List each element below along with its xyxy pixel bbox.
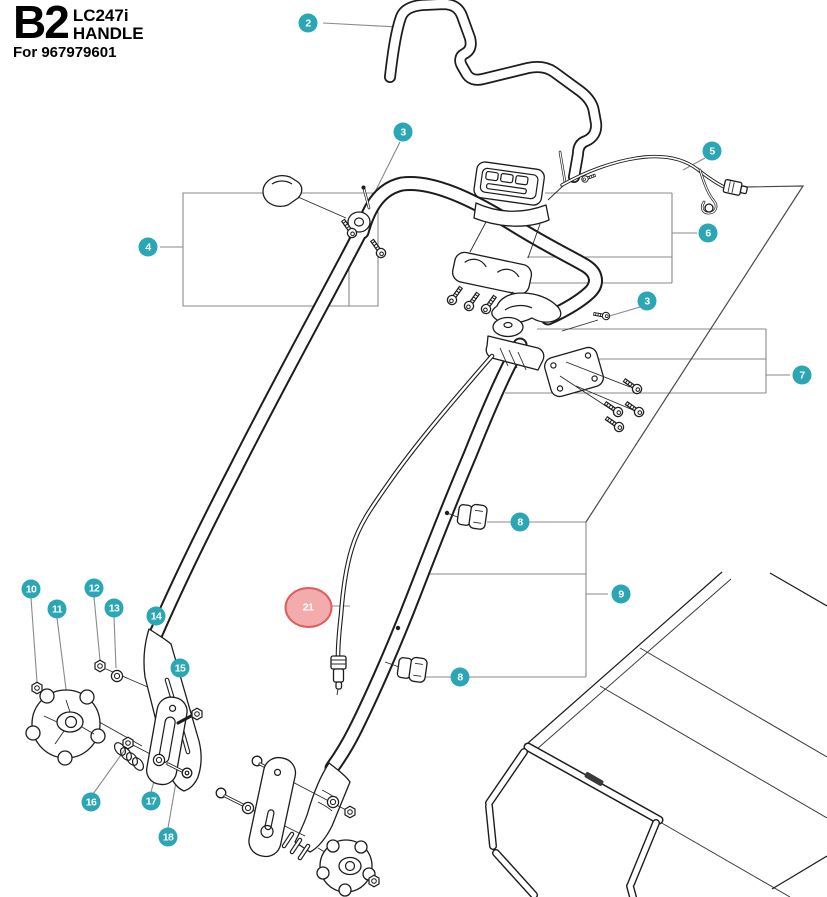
callout-number: 5 (709, 145, 714, 157)
callout-number: 14 (151, 610, 161, 622)
callout-number: 13 (109, 602, 119, 614)
callout-number: 12 (89, 582, 99, 594)
callout-4[interactable]: 4 (139, 238, 158, 257)
callout-8b[interactable]: 8 (451, 668, 470, 687)
callout-number: 6 (705, 227, 710, 239)
callout-21-highlighted[interactable]: 21 (299, 598, 318, 617)
callout-number: 8 (517, 516, 522, 528)
callout-number: 10 (26, 583, 36, 595)
callout-17[interactable]: 17 (142, 792, 161, 811)
callout-9[interactable]: 9 (612, 585, 631, 604)
callout-12[interactable]: 12 (85, 579, 104, 598)
callout-number: 2 (305, 17, 310, 29)
callout-number: 15 (175, 662, 185, 674)
callout-number: 9 (618, 588, 623, 600)
callout-3b[interactable]: 3 (638, 292, 657, 311)
callout-number: 18 (163, 831, 173, 843)
callout-15[interactable]: 15 (171, 659, 190, 678)
callout-8a[interactable]: 8 (511, 513, 530, 532)
callout-5[interactable]: 5 (703, 142, 722, 161)
callout-18[interactable]: 18 (159, 828, 178, 847)
callout-number: 21 (303, 601, 313, 613)
callout-number: 16 (86, 796, 96, 808)
callout-layer: 234563789810111213141516171821 (0, 0, 827, 897)
callout-7[interactable]: 7 (793, 366, 812, 385)
callout-2[interactable]: 2 (299, 14, 318, 33)
callout-10[interactable]: 10 (22, 580, 41, 599)
callout-13[interactable]: 13 (105, 599, 124, 618)
callout-number: 17 (146, 795, 156, 807)
callout-number: 11 (52, 603, 62, 615)
callout-11[interactable]: 11 (48, 600, 67, 619)
callout-3a[interactable]: 3 (394, 123, 413, 142)
callout-16[interactable]: 16 (82, 793, 101, 812)
callout-6[interactable]: 6 (699, 224, 718, 243)
callout-14[interactable]: 14 (147, 607, 166, 626)
callout-number: 3 (400, 126, 405, 138)
callout-number: 4 (145, 241, 150, 253)
callout-number: 8 (457, 671, 462, 683)
callout-number: 3 (644, 295, 649, 307)
parts-diagram-page: B2 LC247i HANDLE For 967979601 234563789… (0, 0, 827, 897)
callout-number: 7 (799, 369, 804, 381)
